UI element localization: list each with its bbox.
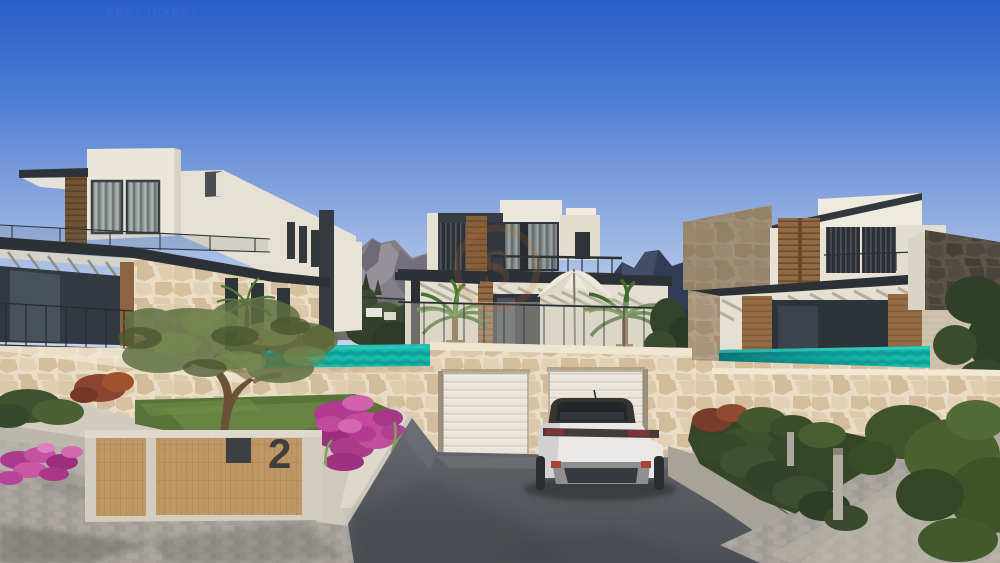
svg-text:S: S	[483, 241, 512, 298]
svg-text:BEST INVEST: BEST INVEST	[106, 6, 199, 18]
svg-text:2: 2	[268, 430, 291, 477]
